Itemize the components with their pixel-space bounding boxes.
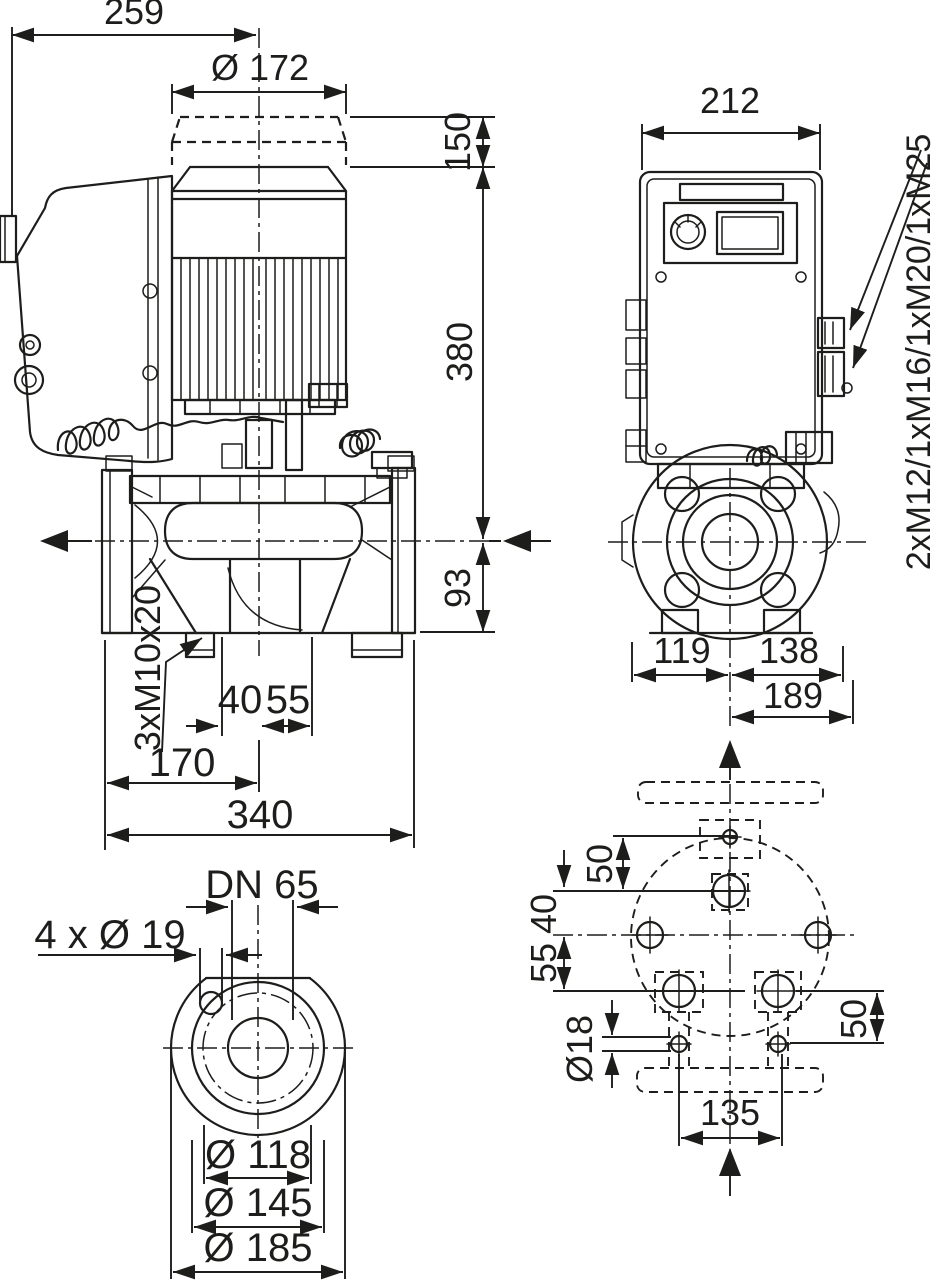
dim-plan-offset-55: 55 bbox=[523, 943, 564, 983]
module-screw-bl bbox=[656, 444, 666, 454]
pump-dimension-drawing: 259 Ø 172 150 380 93 3xM10x20 40 55 170 bbox=[0, 0, 941, 1280]
pump-foot-right bbox=[352, 633, 402, 657]
display-window bbox=[717, 212, 783, 254]
dim-motor-diameter: Ø 172 bbox=[211, 47, 309, 88]
label-cable-glands: 2xM12/1xM16/1xM20/1xM25 bbox=[900, 134, 938, 571]
dim-axis-to-edge: 189 bbox=[763, 675, 823, 716]
discharge-flange bbox=[392, 468, 415, 633]
cable-gland-side-2 bbox=[15, 366, 43, 394]
dim-hole-pitch-right: 50 bbox=[833, 999, 874, 1039]
side-view: 259 Ø 172 150 380 93 3xM10x20 40 55 170 bbox=[0, 0, 551, 850]
flow-arrow-bottom bbox=[719, 1148, 741, 1176]
dim-module-width: 212 bbox=[700, 80, 760, 121]
module-screw-1 bbox=[143, 284, 157, 298]
dim-nominal-bore: DN 65 bbox=[205, 863, 318, 907]
motor-side bbox=[172, 117, 347, 407]
plan-view-dimensions: 50 40 55 Ø18 50 135 bbox=[523, 838, 877, 1146]
label-tapping-holes: 3xM10x20 bbox=[127, 585, 168, 751]
flow-arrow-top bbox=[719, 740, 741, 768]
dim-raised-face: Ø 145 bbox=[204, 1181, 313, 1225]
motor-terminal-box bbox=[309, 384, 347, 407]
lantern-area bbox=[58, 400, 412, 478]
module-screw-tr bbox=[796, 272, 806, 282]
dim-axis-to-base: 93 bbox=[437, 568, 478, 608]
dim-port-to-port: 340 bbox=[227, 793, 294, 837]
dim-overall-width: 259 bbox=[104, 0, 164, 32]
flange-bolt-hole-2 bbox=[761, 477, 795, 511]
module-side-connector bbox=[0, 216, 16, 262]
dim-axis-to-left: 119 bbox=[653, 630, 710, 671]
side-view-dimensions: 259 Ø 172 150 380 93 3xM10x20 40 55 170 bbox=[12, 0, 495, 850]
flange-bolt-hole-3 bbox=[665, 573, 699, 607]
dim-plan-offset-40: 40 bbox=[523, 894, 564, 934]
control-module-side bbox=[0, 176, 172, 462]
dim-hole-diameter: Ø18 bbox=[559, 1015, 600, 1083]
dim-bolt-circle: Ø 118 bbox=[205, 1133, 311, 1177]
power-cable bbox=[58, 417, 283, 454]
flow-arrow-right bbox=[503, 530, 531, 552]
dim-offset-55: 55 bbox=[266, 678, 311, 722]
module-screw-br bbox=[796, 444, 806, 454]
front-view: 212 2xM12/1xM16/1xM20/1xM25 119 138 189 bbox=[608, 80, 938, 726]
module-top-slot bbox=[680, 184, 783, 200]
flow-arrow-left bbox=[40, 530, 68, 552]
front-view-dimensions: 212 2xM12/1xM16/1xM20/1xM25 119 138 189 bbox=[632, 80, 938, 724]
volute bbox=[165, 503, 362, 559]
dim-axis-to-flange: 170 bbox=[149, 741, 216, 785]
foot-mounting-holes bbox=[632, 826, 836, 1056]
module-screw-2 bbox=[143, 366, 157, 380]
plan-view: 50 40 55 Ø18 50 135 bbox=[523, 740, 884, 1196]
flange-bolt-hole-4 bbox=[761, 573, 795, 607]
dim-axis-to-top: 380 bbox=[439, 322, 480, 382]
dim-axis-to-right: 138 bbox=[759, 630, 819, 671]
cable-gland-stack bbox=[372, 452, 412, 468]
flange-bolt-hole-1 bbox=[665, 477, 699, 511]
dim-hole-pitch-top: 50 bbox=[579, 844, 620, 884]
motor-cable-gland bbox=[786, 432, 832, 463]
dim-foot-pitch: 135 bbox=[700, 1092, 760, 1133]
dim-offset-40: 40 bbox=[218, 678, 263, 722]
dim-removal-height: 150 bbox=[437, 112, 478, 172]
dim-bolt-holes: 4 x Ø 19 bbox=[34, 913, 185, 957]
pump-dimension-drawing-page: 259 Ø 172 150 380 93 3xM10x20 40 55 170 bbox=[0, 0, 941, 1280]
shaft-column bbox=[286, 400, 302, 470]
control-module-front bbox=[626, 172, 852, 464]
module-screw-tl bbox=[656, 272, 666, 282]
flange-view: DN 65 4 x Ø 19 Ø 118 Ø 145 Ø 185 bbox=[34, 863, 356, 1279]
dim-outer-diameter: Ø 185 bbox=[204, 1226, 313, 1270]
